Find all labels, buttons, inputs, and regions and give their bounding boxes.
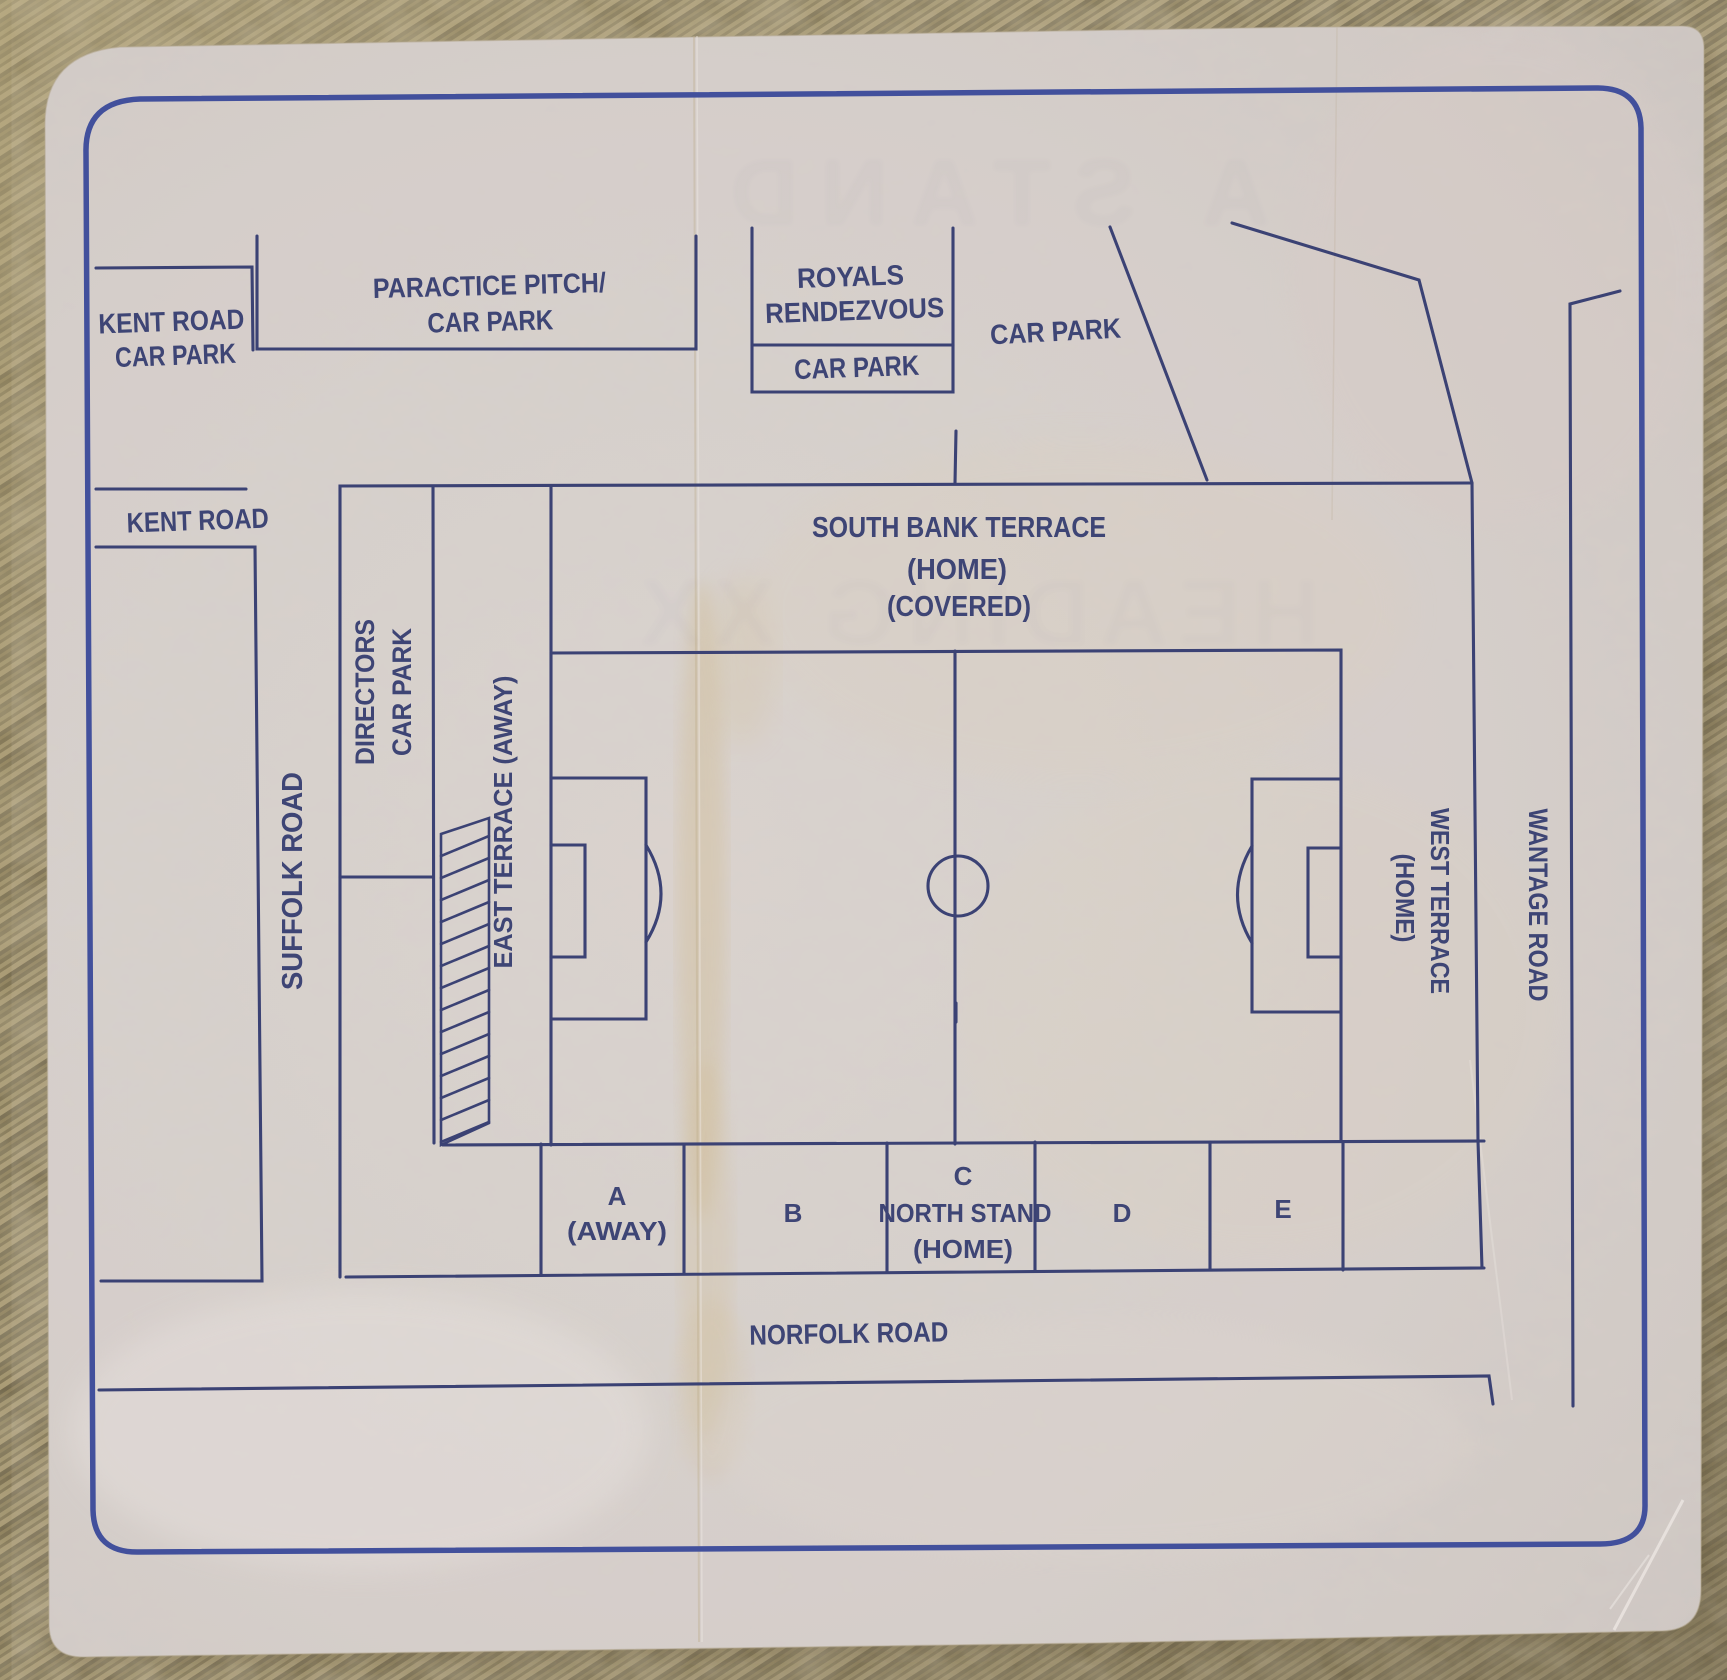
svg-text:NORFOLK ROAD: NORFOLK ROAD bbox=[749, 1316, 949, 1350]
svg-text:C: C bbox=[954, 1161, 973, 1191]
svg-text:WANTAGE ROAD: WANTAGE ROAD bbox=[1523, 809, 1553, 1002]
svg-text:WEST TERRACE: WEST TERRACE bbox=[1425, 808, 1455, 994]
svg-text:CAR PARK: CAR PARK bbox=[387, 628, 417, 756]
svg-text:B: B bbox=[784, 1198, 803, 1228]
svg-text:SOUTH BANK TERRACE: SOUTH BANK TERRACE bbox=[812, 512, 1106, 544]
svg-text:D: D bbox=[1113, 1198, 1132, 1228]
svg-text:(HOME): (HOME) bbox=[913, 1234, 1013, 1264]
svg-text:(AWAY): (AWAY) bbox=[567, 1216, 667, 1246]
svg-text:KENT ROAD: KENT ROAD bbox=[98, 303, 245, 339]
svg-text:(HOME): (HOME) bbox=[1390, 854, 1420, 943]
svg-text:CAR PARK: CAR PARK bbox=[427, 304, 554, 338]
svg-text:PARACTICE PITCH/: PARACTICE PITCH/ bbox=[372, 267, 606, 304]
svg-text:RENDEZVOUS: RENDEZVOUS bbox=[765, 292, 945, 329]
svg-text:KENT ROAD: KENT ROAD bbox=[126, 503, 269, 539]
svg-text:SUFFOLK ROAD: SUFFOLK ROAD bbox=[277, 772, 309, 990]
svg-text:CAR PARK: CAR PARK bbox=[794, 350, 920, 385]
svg-text:(COVERED): (COVERED) bbox=[887, 591, 1031, 623]
svg-text:ROYALS: ROYALS bbox=[796, 259, 904, 294]
svg-text:(HOME): (HOME) bbox=[907, 554, 1007, 586]
svg-text:A: A bbox=[608, 1181, 627, 1211]
svg-text:NORTH STAND: NORTH STAND bbox=[879, 1198, 1052, 1228]
svg-text:CAR PARK: CAR PARK bbox=[115, 338, 237, 373]
svg-text:E: E bbox=[1274, 1194, 1291, 1224]
svg-text:DIRECTORS: DIRECTORS bbox=[350, 619, 380, 765]
svg-text:EAST TERRACE (AWAY): EAST TERRACE (AWAY) bbox=[488, 676, 518, 969]
